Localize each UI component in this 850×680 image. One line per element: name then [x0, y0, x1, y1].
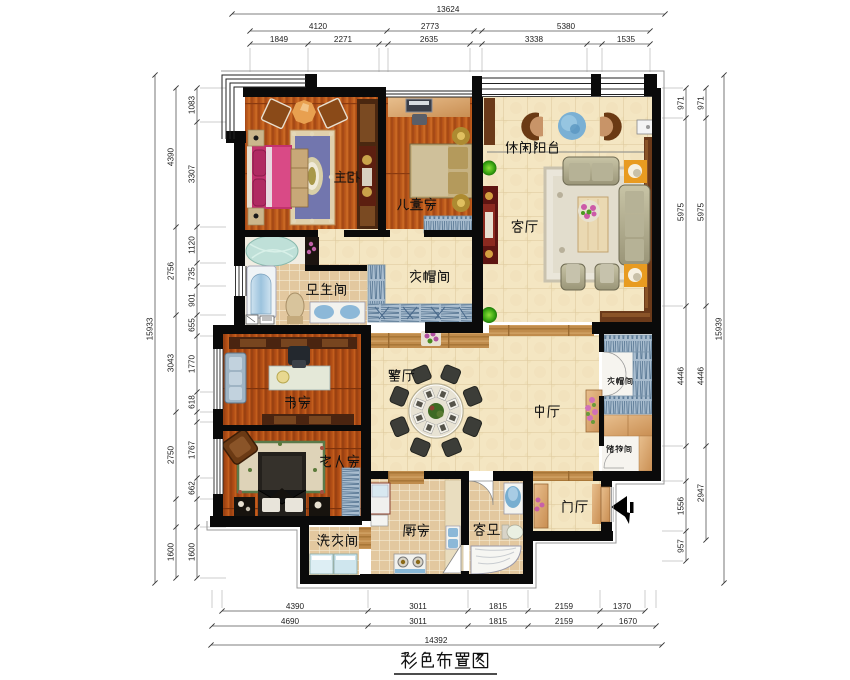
svg-text:1600: 1600: [167, 542, 176, 561]
svg-text:1849: 1849: [270, 35, 289, 44]
svg-text:15933: 15933: [146, 317, 155, 340]
svg-text:3043: 3043: [167, 353, 176, 372]
svg-text:2947: 2947: [697, 483, 706, 502]
svg-text:1670: 1670: [619, 617, 638, 626]
svg-text:2756: 2756: [167, 261, 176, 280]
svg-text:1556: 1556: [677, 496, 686, 515]
svg-text:1535: 1535: [617, 35, 636, 44]
svg-text:4690: 4690: [281, 617, 300, 626]
svg-text:4390: 4390: [286, 602, 305, 611]
svg-text:901: 901: [188, 293, 197, 307]
svg-text:971: 971: [697, 96, 706, 110]
svg-text:5975: 5975: [677, 202, 686, 221]
svg-text:957: 957: [677, 539, 686, 553]
svg-text:1770: 1770: [188, 354, 197, 373]
svg-text:1815: 1815: [489, 602, 508, 611]
svg-text:5380: 5380: [557, 22, 576, 31]
svg-text:1370: 1370: [613, 602, 632, 611]
svg-text:971: 971: [677, 96, 686, 110]
svg-text:15939: 15939: [715, 317, 724, 340]
svg-text:2271: 2271: [334, 35, 353, 44]
svg-text:655: 655: [188, 318, 197, 332]
svg-text:13624: 13624: [437, 5, 460, 14]
svg-text:618: 618: [188, 395, 197, 409]
svg-text:2750: 2750: [167, 445, 176, 464]
svg-text:1120: 1120: [188, 236, 197, 254]
svg-text:1083: 1083: [188, 95, 197, 114]
svg-text:2773: 2773: [421, 22, 440, 31]
svg-text:4446: 4446: [697, 366, 706, 385]
svg-text:2635: 2635: [420, 35, 439, 44]
svg-text:14392: 14392: [425, 636, 448, 645]
svg-text:4390: 4390: [167, 147, 176, 166]
svg-text:2159: 2159: [555, 602, 574, 611]
svg-text:2159: 2159: [555, 617, 574, 626]
svg-text:1815: 1815: [489, 617, 508, 626]
svg-text:1600: 1600: [188, 542, 197, 561]
svg-text:1767: 1767: [188, 440, 197, 459]
svg-text:735: 735: [188, 267, 197, 281]
svg-text:4446: 4446: [677, 366, 686, 385]
svg-text:3011: 3011: [409, 602, 427, 611]
svg-text:3307: 3307: [188, 164, 197, 183]
svg-text:662: 662: [188, 481, 197, 495]
svg-text:4120: 4120: [309, 22, 328, 31]
svg-text:3338: 3338: [525, 35, 544, 44]
svg-text:5975: 5975: [697, 202, 706, 221]
svg-text:3011: 3011: [409, 617, 427, 626]
